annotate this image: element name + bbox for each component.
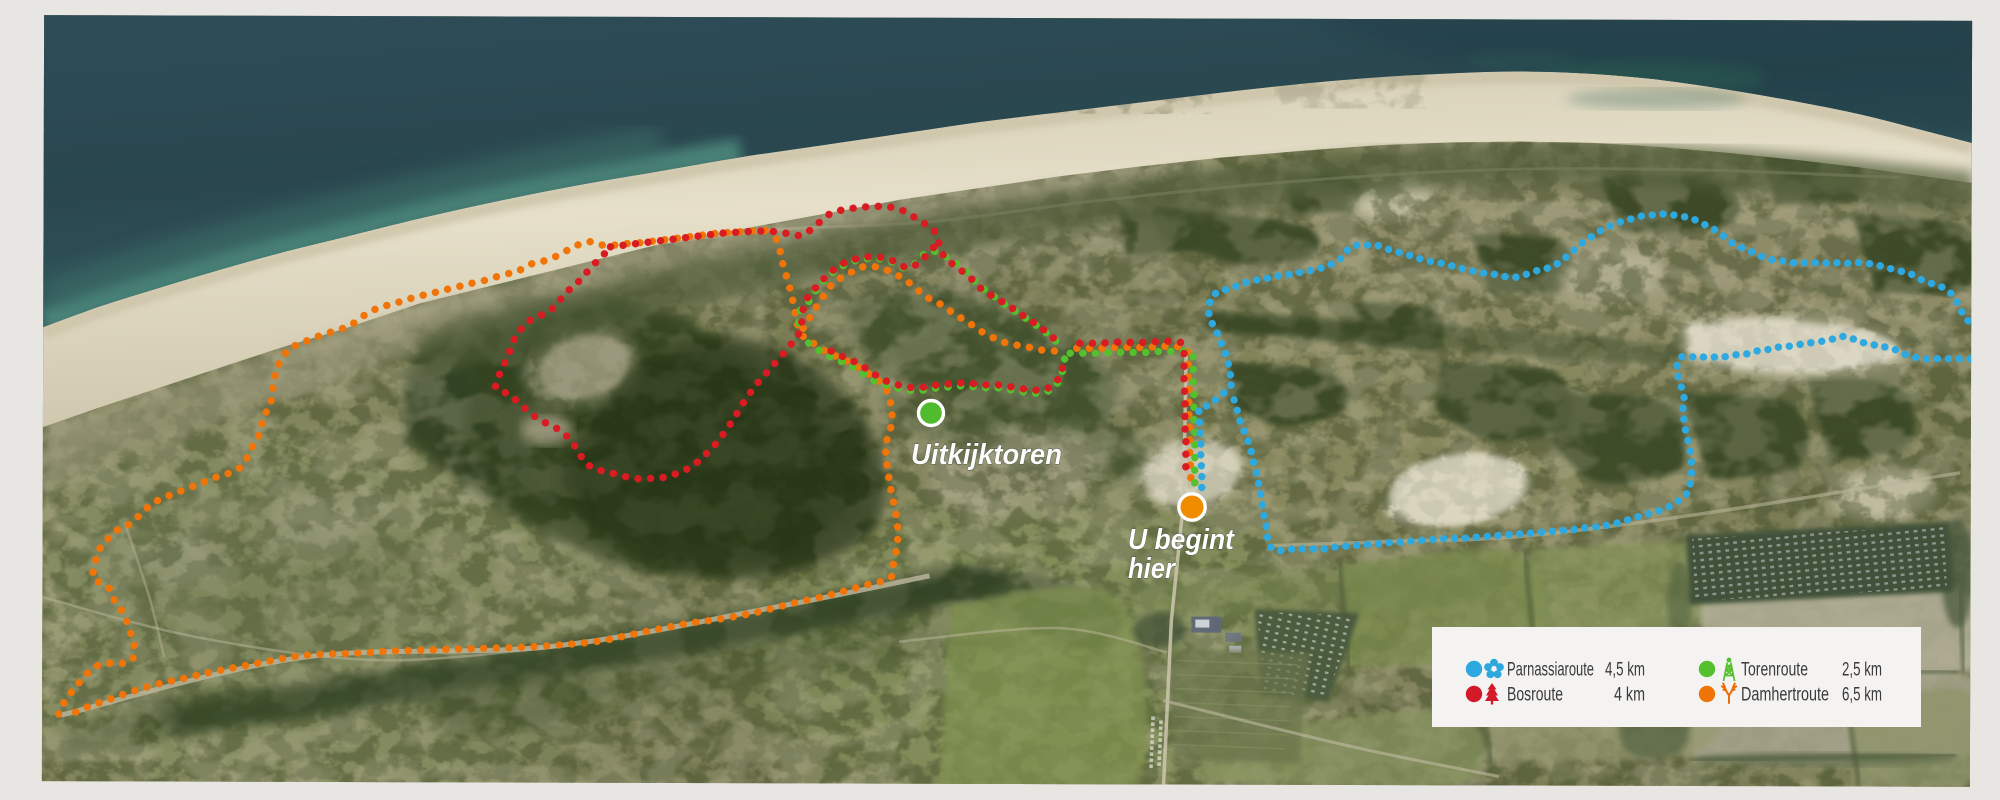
svg-text:4 km: 4 km <box>1614 685 1645 706</box>
svg-text:Damhertroute: Damhertroute <box>1741 685 1829 706</box>
svg-text:hier: hier <box>1128 553 1177 585</box>
svg-text:U begint: U begint <box>1128 524 1235 556</box>
svg-text:2,5 km: 2,5 km <box>1842 660 1882 681</box>
svg-text:Bosroute: Bosroute <box>1507 685 1563 706</box>
svg-text:Parnassiaroute: Parnassiaroute <box>1507 660 1594 681</box>
svg-text:Uitkijktoren: Uitkijktoren <box>911 439 1062 471</box>
svg-text:4,5 km: 4,5 km <box>1605 660 1645 681</box>
svg-text:6,5 km: 6,5 km <box>1842 685 1882 706</box>
svg-text:Torenroute: Torenroute <box>1741 660 1808 681</box>
